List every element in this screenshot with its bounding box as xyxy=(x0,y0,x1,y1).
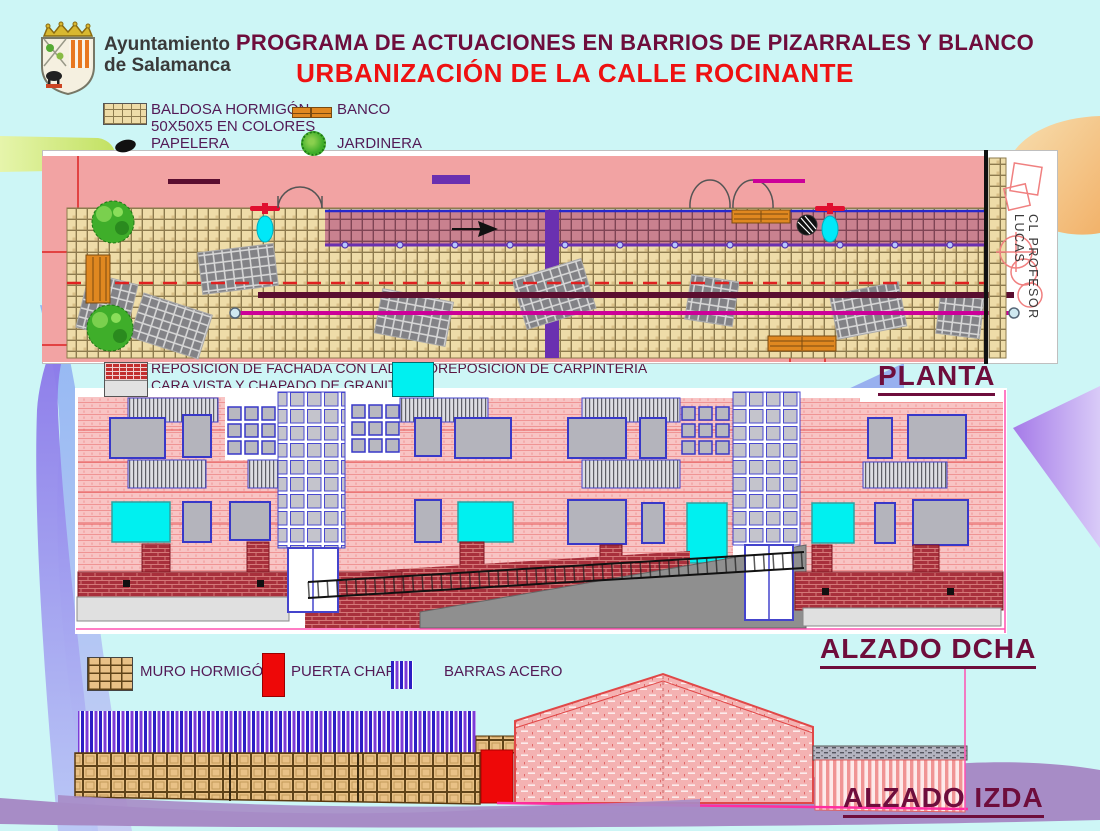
alzado-dcha-label: ALZADO DCHA xyxy=(820,633,1036,669)
right-wedge-shape xyxy=(1013,386,1100,548)
saneamiento-swatch-icon xyxy=(168,179,220,184)
steel-bars-fence xyxy=(78,711,476,753)
abastecimiento-swatch-icon xyxy=(753,179,805,183)
baldosa-swatch-icon xyxy=(103,103,147,125)
barras-swatch-icon xyxy=(391,661,413,689)
alzado-izda-label: ALZADO IZDA xyxy=(843,782,1044,818)
elevation-right-drawing xyxy=(75,388,1007,634)
planta-label: PLANTA xyxy=(878,360,995,396)
street-name-label: CL PROFESOR LUCAS xyxy=(1012,214,1040,359)
papelera-icon-plan xyxy=(797,215,817,235)
steel-door xyxy=(481,750,513,803)
slide: Ayuntamiento de Salamanca PROGRAMA DE AC… xyxy=(0,0,1100,831)
low-building-roof xyxy=(813,746,967,760)
page-title: PROGRAMA DE ACTUACIONES EN BARRIOS DE PI… xyxy=(225,30,1045,56)
canalizacion-swatch-icon xyxy=(432,175,470,184)
salamanca-crest-logo xyxy=(36,20,100,96)
concrete-wall xyxy=(75,753,480,804)
muro-swatch-icon xyxy=(87,657,133,691)
jardinera-swatch-icon xyxy=(301,131,326,156)
carpinteria-swatch-icon xyxy=(392,362,434,397)
page-subtitle: URBANIZACIÓN DE LA CALLE ROCINANTE xyxy=(285,58,865,89)
fachada-swatch-icon xyxy=(104,362,148,397)
banco-swatch-icon xyxy=(292,107,332,118)
puerta-swatch-icon xyxy=(262,653,285,697)
gable-building xyxy=(515,674,813,803)
